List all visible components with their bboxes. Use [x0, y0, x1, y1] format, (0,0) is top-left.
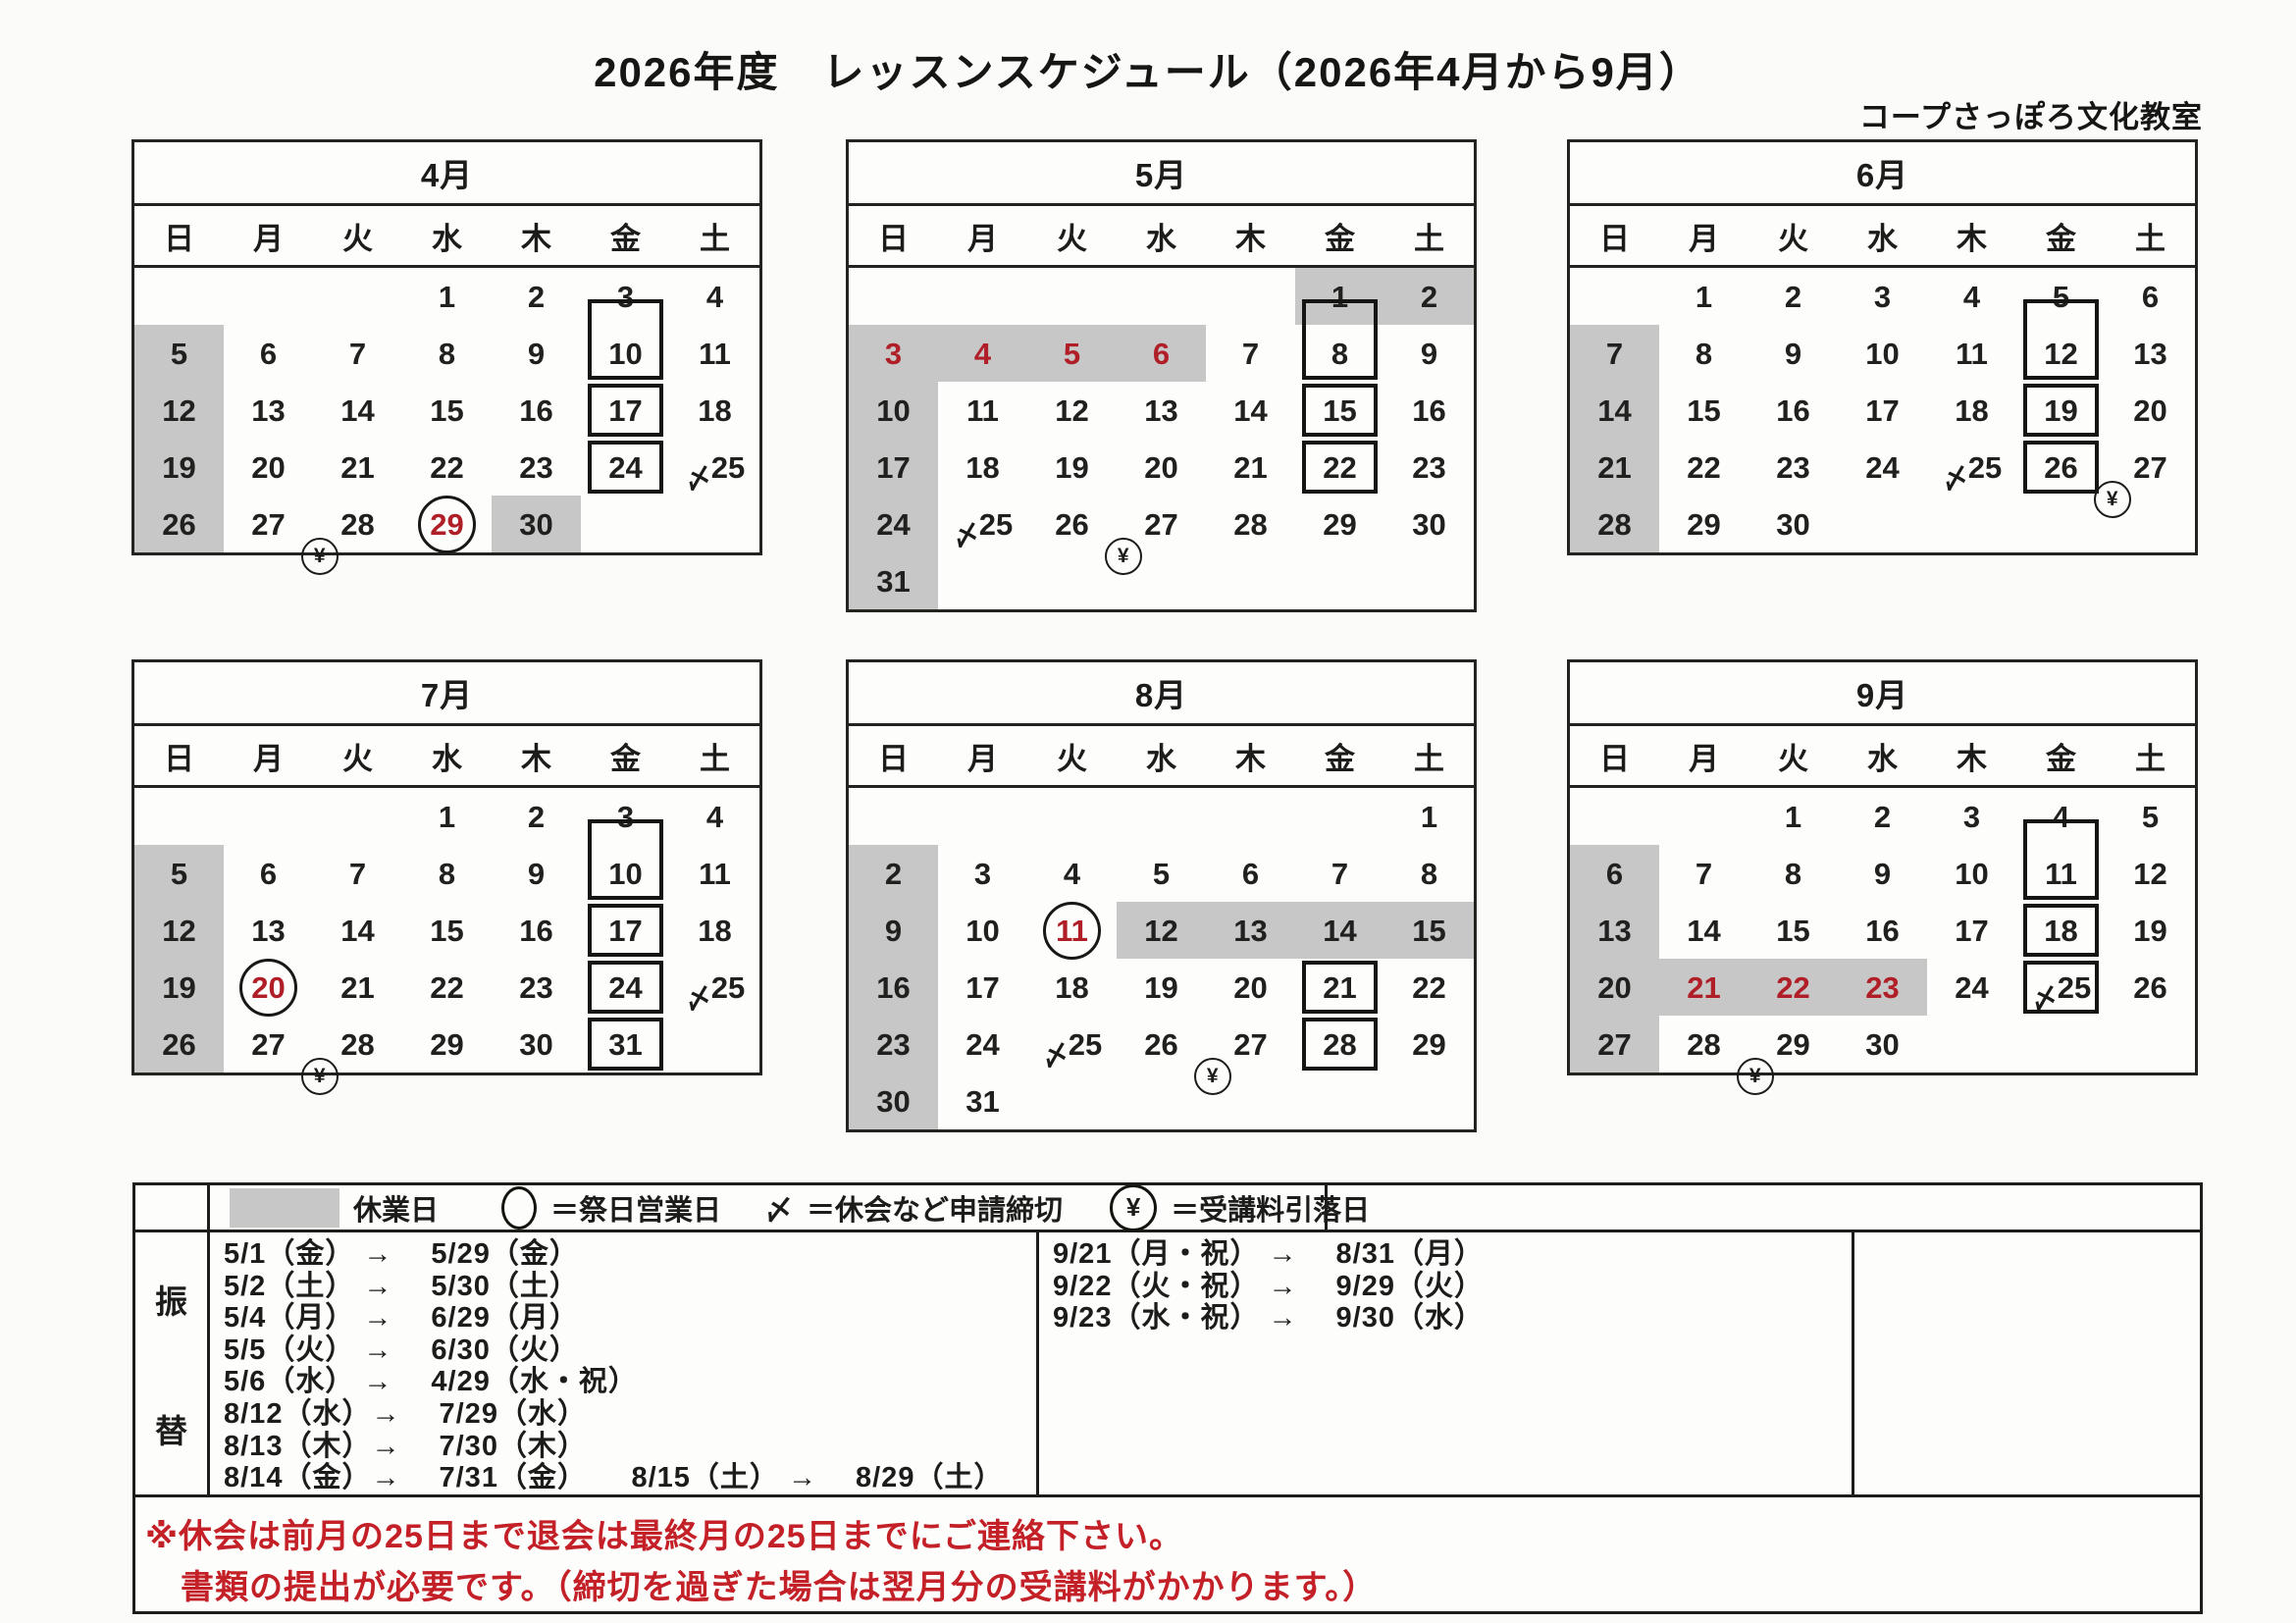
- calendar-day-cell: 7: [1206, 325, 1295, 382]
- calendar-day-cell: 12: [1117, 902, 1206, 959]
- calendar-day-cell: 18: [670, 382, 759, 439]
- calendar-day-cell: 8: [402, 845, 492, 902]
- calendar-day-cell: 1: [1748, 788, 1838, 845]
- calendar-empty-cell: [1295, 552, 1384, 609]
- calendar-day-cell: 3: [1927, 788, 2016, 845]
- date-number: 21: [1687, 972, 1720, 1003]
- calendar-day-cell: 1: [1659, 268, 1748, 325]
- date-number: 23: [1865, 972, 1899, 1003]
- date-number: 30: [876, 1086, 910, 1117]
- calendar-day-cell: 6: [1206, 845, 1295, 902]
- weekday-label: 土: [1384, 726, 1474, 785]
- calendar-day-cell: 6: [224, 845, 313, 902]
- calendar-day-cell: 3: [581, 268, 670, 325]
- calendar-day-cell: 9: [1384, 325, 1474, 382]
- transfer-entry: 5/4（月） → 6/29（月）: [224, 1302, 1036, 1335]
- calendar-day-cell: 16: [849, 959, 938, 1016]
- date-number: 10: [1955, 859, 1988, 889]
- calendar-day-cell: 30: [849, 1073, 938, 1129]
- calendar-day-cell: 〆25: [938, 496, 1027, 552]
- calendar-day-cell: 〆25: [1027, 1016, 1117, 1073]
- calendar-day-cell: 3: [938, 845, 1027, 902]
- calendar-empty-cell: [1206, 788, 1295, 845]
- weekday-label: 水: [1117, 206, 1206, 265]
- calendar-day-cell: 17: [581, 382, 670, 439]
- weekday-label: 土: [670, 206, 759, 265]
- calendar-day-cell: 〆25: [2016, 959, 2106, 1016]
- weekday-label: 日: [849, 206, 938, 265]
- weekday-label: 火: [1748, 726, 1838, 785]
- date-number: 30: [1865, 1029, 1899, 1060]
- date-number: 12: [162, 395, 195, 426]
- calendar-day-cell: 31: [581, 1016, 670, 1073]
- date-number: 14: [1687, 916, 1720, 946]
- date-number: 10: [1865, 339, 1899, 369]
- fee-withdrawal-label: ＝受講料引落日: [1171, 1187, 1370, 1229]
- transfer-header-char: 替: [155, 1405, 187, 1452]
- calendar-day-cell: 30: [492, 496, 581, 552]
- weekday-header-row: 日月火水木金土: [849, 206, 1474, 268]
- calendar-september: 9月日月火水木金土1234567891011121314151617181920…: [1567, 659, 2198, 1075]
- calendar-empty-cell: [2016, 1016, 2106, 1073]
- calendar-empty-cell: [1206, 552, 1295, 609]
- closed-day-label: 休業日: [353, 1187, 439, 1229]
- calendar-day-cell: 17: [1838, 382, 1927, 439]
- calendar-day-cell: 14: [313, 902, 402, 959]
- calendar-day-cell: 9: [849, 902, 938, 959]
- calendar-day-cell: 7: [1659, 845, 1748, 902]
- transfer-entry: 9/23（水・祝） → 9/30（水）: [1053, 1302, 1852, 1335]
- calendar-empty-cell: [313, 788, 402, 845]
- date-number: 16: [1776, 395, 1809, 426]
- date-number: 12: [2044, 339, 2077, 369]
- calendar-day-cell: 23: [1838, 959, 1927, 1016]
- date-number: 3: [617, 282, 634, 312]
- calendar-day-cell: 3: [849, 325, 938, 382]
- transfer-header-char: 振: [155, 1276, 187, 1323]
- calendar-day-cell: 16: [1748, 382, 1838, 439]
- weekday-label: 月: [224, 206, 313, 265]
- calendar-day-cell: 26¥: [2016, 439, 2106, 496]
- calendar-day-cell: 20: [224, 959, 313, 1016]
- date-number: 2: [528, 282, 545, 312]
- date-number: 9: [528, 339, 545, 369]
- calendar-day-cell: 2: [1748, 268, 1838, 325]
- date-number: 17: [608, 395, 642, 426]
- date-number: 11: [699, 339, 731, 369]
- date-number: 6: [260, 859, 277, 889]
- calendar-day-cell: 7: [313, 325, 402, 382]
- calendar-day-cell: 28: [1570, 496, 1659, 552]
- date-number: 19: [1144, 972, 1177, 1003]
- date-number: 5: [2053, 282, 2069, 312]
- date-number: 30: [1412, 509, 1445, 540]
- calendar-day-cell: 9: [492, 325, 581, 382]
- date-number: 22: [430, 972, 463, 1003]
- date-number: 27: [1144, 509, 1177, 540]
- calendar-day-cell: 5: [2016, 268, 2106, 325]
- calendar-day-cell: 3: [581, 788, 670, 845]
- month-title: 6月: [1570, 142, 2195, 206]
- date-number: 20: [2133, 395, 2166, 426]
- date-grid: 123456789101112131415161718192021222324〆…: [849, 788, 1474, 1129]
- date-number: 10: [608, 339, 642, 369]
- weekday-header-row: 日月火水木金土: [1570, 206, 2195, 268]
- calendar-day-cell: 24: [1927, 959, 2016, 1016]
- calendar-empty-cell: [1927, 496, 2016, 552]
- weekday-label: 水: [1838, 206, 1927, 265]
- date-number: 2: [1874, 802, 1891, 832]
- date-number: 9: [885, 916, 902, 946]
- date-number: 7: [1606, 339, 1623, 369]
- date-number: 27: [1597, 1029, 1631, 1060]
- calendar-day-cell: 2: [1838, 788, 1927, 845]
- date-number: 5: [171, 339, 187, 369]
- date-number: 11: [1956, 339, 1988, 369]
- transfer-row: 振替 5/1（金） → 5/29（金）5/2（土） → 5/30（土）5/4（月…: [135, 1232, 2200, 1494]
- calendar-empty-cell: [1295, 1073, 1384, 1129]
- date-number: 29: [1323, 509, 1356, 540]
- weekday-label: 金: [581, 726, 670, 785]
- date-number: 1: [1785, 802, 1801, 832]
- calendar-empty-cell: [938, 552, 1027, 609]
- weekday-header-row: 日月火水木金土: [134, 726, 759, 788]
- calendar-day-cell: 21: [1659, 959, 1748, 1016]
- calendar-may: 5月日月火水木金土1234567891011121314151617181920…: [846, 139, 1477, 612]
- date-number: 30: [519, 509, 552, 540]
- date-number: 15: [430, 916, 463, 946]
- date-number: 21: [1597, 452, 1631, 483]
- calendar-day-cell: 29: [402, 1016, 492, 1073]
- calendar-day-cell: 10: [938, 902, 1027, 959]
- date-number: 8: [1785, 859, 1801, 889]
- date-number: 21: [1233, 452, 1267, 483]
- transfer-list-left: 5/1（金） → 5/29（金）5/2（土） → 5/30（土）5/4（月） →…: [210, 1232, 1039, 1494]
- transfer-entry: 8/12（水）→ 7/29（水）: [224, 1398, 1036, 1431]
- date-number: 24: [608, 452, 642, 483]
- calendar-day-cell: 9: [1748, 325, 1838, 382]
- date-number: 18: [1055, 972, 1088, 1003]
- date-number: 27: [1233, 1029, 1267, 1060]
- calendar-day-cell: 1: [1295, 268, 1384, 325]
- calendar-day-cell: 19: [134, 959, 224, 1016]
- calendar-day-cell: 23: [492, 439, 581, 496]
- date-number: 26: [2133, 972, 2166, 1003]
- calendar-day-cell: 19: [1117, 959, 1206, 1016]
- date-number: 23: [519, 972, 552, 1003]
- calendar-day-cell: 2: [1384, 268, 1474, 325]
- date-number: 20: [251, 452, 285, 483]
- calendar-day-cell: 28: [1206, 496, 1295, 552]
- transfer-entry: 5/2（土） → 5/30（土）: [224, 1271, 1036, 1303]
- calendar-day-cell: 26: [134, 1016, 224, 1073]
- weekday-label: 水: [402, 206, 492, 265]
- calendar-empty-cell: [1384, 552, 1474, 609]
- calendar-day-cell: 〆25: [1927, 439, 2016, 496]
- weekday-label: 日: [134, 206, 224, 265]
- weekday-label: 火: [1748, 206, 1838, 265]
- date-number: 23: [1776, 452, 1809, 483]
- calendar-day-cell: 20: [224, 439, 313, 496]
- date-number: 2: [1785, 282, 1801, 312]
- date-number: 8: [439, 339, 455, 369]
- calendar-day-cell: 26: [134, 496, 224, 552]
- calendar-day-cell: 〆25: [670, 439, 759, 496]
- calendar-empty-cell: [1927, 1016, 2016, 1073]
- date-number: 6: [260, 339, 277, 369]
- weekday-label: 金: [1295, 206, 1384, 265]
- calendar-day-cell: 13: [1117, 382, 1206, 439]
- date-number: 4: [974, 339, 991, 369]
- weekday-label: 水: [402, 726, 492, 785]
- calendar-day-cell: 27¥: [224, 496, 313, 552]
- date-number: 1: [439, 802, 455, 832]
- calendar-day-cell: 3: [1838, 268, 1927, 325]
- date-number: 17: [876, 452, 910, 483]
- calendar-day-cell: 30: [1384, 496, 1474, 552]
- calendar-day-cell: 16: [1838, 902, 1927, 959]
- calendar-day-cell: 18: [938, 439, 1027, 496]
- date-number: 18: [698, 916, 731, 946]
- calendar-day-cell: 12: [1027, 382, 1117, 439]
- fee-withdrawal-mark: ¥: [1105, 538, 1142, 575]
- calendar-day-cell: 13: [224, 902, 313, 959]
- date-number: 26: [2044, 452, 2077, 483]
- calendar-day-cell: 28: [1295, 1016, 1384, 1073]
- calendar-day-cell: 31: [849, 552, 938, 609]
- calendar-day-cell: 14: [1570, 382, 1659, 439]
- date-number: 16: [519, 395, 552, 426]
- calendar-day-cell: 14: [1295, 902, 1384, 959]
- date-number: 3: [974, 859, 991, 889]
- calendar-day-cell: 4: [2016, 788, 2106, 845]
- calendar-empty-cell: [1027, 788, 1117, 845]
- calendar-empty-cell: [1570, 788, 1659, 845]
- date-number: 25: [1069, 1029, 1102, 1060]
- weekday-label: 月: [938, 206, 1027, 265]
- calendar-day-cell: 20: [1570, 959, 1659, 1016]
- calendar-day-cell: 30: [492, 1016, 581, 1073]
- legend-and-transfer-table: 休業日 ＝祭日営業日 〆 ＝休会など申請締切 ¥ ＝受講料引落日 振替 5/1（…: [132, 1182, 2203, 1614]
- date-number: 18: [1955, 395, 1988, 426]
- holiday-open-circle: 29: [418, 496, 476, 553]
- calendar-empty-cell: [849, 268, 938, 325]
- calendar-day-cell: 24: [1838, 439, 1927, 496]
- calendar-day-cell: 4: [670, 788, 759, 845]
- date-number: 7: [1331, 859, 1348, 889]
- calendar-empty-cell: [1838, 496, 1927, 552]
- calendar-day-cell: 26¥: [1027, 496, 1117, 552]
- date-number: 15: [1323, 395, 1356, 426]
- date-number: 9: [1785, 339, 1801, 369]
- calendar-day-cell: 8: [402, 325, 492, 382]
- calendar-day-cell: 11: [1927, 325, 2016, 382]
- application-deadline-mark: 〆: [1039, 1032, 1070, 1073]
- date-number: 4: [1963, 282, 1980, 312]
- calendar-day-cell: 30: [1838, 1016, 1927, 1073]
- date-number: 19: [1055, 452, 1088, 483]
- weekday-label: 木: [1206, 206, 1295, 265]
- weekday-label: 火: [1027, 206, 1117, 265]
- calendar-day-cell: 18: [2016, 902, 2106, 959]
- date-number: 31: [876, 566, 910, 597]
- date-number: 16: [519, 916, 552, 946]
- date-number: 5: [1064, 339, 1080, 369]
- calendar-april: 4月日月火水木金土1234567891011121314151617181920…: [131, 139, 762, 555]
- calendar-day-cell: 〆25: [670, 959, 759, 1016]
- application-deadline-mark: 〆: [2028, 975, 2060, 1017]
- weekday-label: 金: [2016, 206, 2106, 265]
- fee-withdrawal-mark: ¥: [2094, 481, 2131, 518]
- weekday-label: 水: [1838, 726, 1927, 785]
- transfer-entry: 8/14（金）→ 7/31（金） 8/15（土） → 8/29（土）: [224, 1462, 1036, 1494]
- date-number: 10: [965, 916, 999, 946]
- calendar-day-cell: 11: [670, 325, 759, 382]
- weekday-header-row: 日月火水木金土: [849, 726, 1474, 788]
- calendar-day-cell: 23: [492, 959, 581, 1016]
- calendar-day-cell: 10: [849, 382, 938, 439]
- date-number: 3: [617, 802, 634, 832]
- date-number: 25: [711, 452, 745, 483]
- date-number: 8: [439, 859, 455, 889]
- date-number: 15: [1412, 916, 1445, 946]
- calendar-day-cell: 10: [1927, 845, 2016, 902]
- date-number: 12: [1055, 395, 1088, 426]
- date-number: 17: [1955, 916, 1988, 946]
- calendar-august: 8月日月火水木金土1234567891011121314151617181920…: [846, 659, 1477, 1132]
- application-deadline-mark: 〆: [682, 975, 713, 1017]
- calendar-day-cell: 19: [2016, 382, 2106, 439]
- holiday-open-label: ＝祭日営業日: [550, 1187, 721, 1229]
- date-number: 14: [340, 395, 374, 426]
- date-number: 5: [171, 859, 187, 889]
- date-number: 22: [1776, 972, 1809, 1003]
- date-grid: 123456789101112131415161718192021222324〆…: [1570, 268, 2195, 552]
- date-number: 25: [1968, 452, 2002, 483]
- month-title: 4月: [134, 142, 759, 206]
- calendar-day-cell: 7: [1570, 325, 1659, 382]
- weekday-label: 月: [938, 726, 1027, 785]
- calendar-day-cell: 30: [1748, 496, 1838, 552]
- date-number: 18: [965, 452, 999, 483]
- calendar-day-cell: 5: [2106, 788, 2195, 845]
- date-number: 7: [349, 859, 366, 889]
- date-number: 22: [430, 452, 463, 483]
- calendar-day-cell: 13: [1206, 902, 1295, 959]
- date-number: 13: [2133, 339, 2166, 369]
- calendar-day-cell: 5: [134, 845, 224, 902]
- scanned-lesson-schedule-page: 2026年度 レッスンスケジュール（2026年4月から9月） コープさっぽろ文化…: [0, 0, 2296, 1623]
- calendar-day-cell: 24: [849, 496, 938, 552]
- date-number: 28: [340, 509, 374, 540]
- calendar-day-cell: 22: [1659, 439, 1748, 496]
- date-number: 19: [162, 452, 195, 483]
- deadline-mark-symbol: 〆: [764, 1187, 793, 1229]
- deadline-label: ＝休会など申請締切: [807, 1187, 1063, 1229]
- calendar-day-cell: 29: [1384, 1016, 1474, 1073]
- legend-row: 休業日 ＝祭日営業日 〆 ＝休会など申請締切 ¥ ＝受講料引落日: [135, 1185, 2200, 1232]
- date-number: 25: [979, 509, 1013, 540]
- calendar-day-cell: 12: [134, 382, 224, 439]
- calendar-day-cell: 24: [581, 959, 670, 1016]
- calendar-day-cell: 19: [134, 439, 224, 496]
- date-grid: 123456789101112131415161718192021222324〆…: [1570, 788, 2195, 1073]
- transfer-list-right: 9/21（月・祝） → 8/31（月）9/22（火・祝） → 9/29（火）9/…: [1039, 1232, 1854, 1494]
- calendar-day-cell: 22: [402, 439, 492, 496]
- holiday-open-circle: 11: [1043, 902, 1101, 960]
- date-number: 24: [608, 972, 642, 1003]
- calendar-empty-cell: [1027, 1073, 1117, 1129]
- calendar-day-cell: 20: [2106, 382, 2195, 439]
- calendar-day-cell: 7: [1295, 845, 1384, 902]
- date-number: 30: [1776, 509, 1809, 540]
- calendar-day-cell: 13: [224, 382, 313, 439]
- date-number: 19: [2044, 395, 2077, 426]
- calendar-day-cell: 1: [1384, 788, 1474, 845]
- date-number: 17: [608, 916, 642, 946]
- calendar-empty-cell: [849, 788, 938, 845]
- date-number: 23: [519, 452, 552, 483]
- date-number: 12: [2133, 859, 2166, 889]
- date-number: 6: [1153, 339, 1170, 369]
- date-number: 19: [162, 972, 195, 1003]
- transfer-entry: 5/1（金） → 5/29（金）: [224, 1238, 1036, 1271]
- weekday-label: 金: [2016, 726, 2106, 785]
- calendar-day-cell: 4: [670, 268, 759, 325]
- notice-line-2: 書類の提出が必要です。（締切を過ぎた場合は翌月分の受講料がかかります。）: [145, 1562, 2200, 1613]
- fee-withdrawal-mark: ¥: [1194, 1058, 1231, 1095]
- legend-left-empty-cell: [135, 1185, 210, 1230]
- date-number: 28: [1323, 1029, 1356, 1060]
- calendar-day-cell: 18: [1927, 382, 2016, 439]
- fee-withdrawal-mark: ¥: [301, 538, 339, 575]
- date-number: 22: [1323, 452, 1356, 483]
- weekday-label: 火: [313, 726, 402, 785]
- weekday-label: 金: [581, 206, 670, 265]
- calendar-june: 6月日月火水木金土1234567891011121314151617181920…: [1567, 139, 2198, 555]
- date-number: 2: [885, 859, 902, 889]
- calendar-empty-cell: [224, 788, 313, 845]
- date-number: 6: [2142, 282, 2159, 312]
- calendar-day-cell: 21: [1206, 439, 1295, 496]
- date-number: 26: [1144, 1029, 1177, 1060]
- calendar-day-cell: 23: [1384, 439, 1474, 496]
- date-number: 4: [2053, 802, 2069, 832]
- date-number: 14: [1597, 395, 1631, 426]
- calendar-day-cell: 24: [581, 439, 670, 496]
- date-number: 21: [1323, 972, 1356, 1003]
- calendar-empty-cell: [1117, 788, 1206, 845]
- calendar-day-cell: 20: [1206, 959, 1295, 1016]
- calendar-day-cell: 9: [492, 845, 581, 902]
- notice-row: ※休会は前月の25日まで退会は最終月の25日までにご連絡下さい。 書類の提出が必…: [135, 1494, 2200, 1617]
- weekday-header-row: 日月火水木金土: [1570, 726, 2195, 788]
- date-number: 2: [1421, 282, 1437, 312]
- calendar-day-cell: 11: [938, 382, 1027, 439]
- calendar-empty-cell: [1206, 268, 1295, 325]
- calendar-empty-cell: [1117, 268, 1206, 325]
- calendar-empty-cell: [1295, 788, 1384, 845]
- holiday-open-circle: 20: [239, 959, 297, 1017]
- date-number: 15: [1687, 395, 1720, 426]
- date-number: 5: [1153, 859, 1170, 889]
- date-number: 17: [1865, 395, 1899, 426]
- weekday-label: 水: [1117, 726, 1206, 785]
- calendar-day-cell: 14: [1206, 382, 1295, 439]
- calendar-day-cell: 9: [1838, 845, 1927, 902]
- date-number: 29: [1776, 1029, 1809, 1060]
- calendar-day-cell: 6: [1570, 845, 1659, 902]
